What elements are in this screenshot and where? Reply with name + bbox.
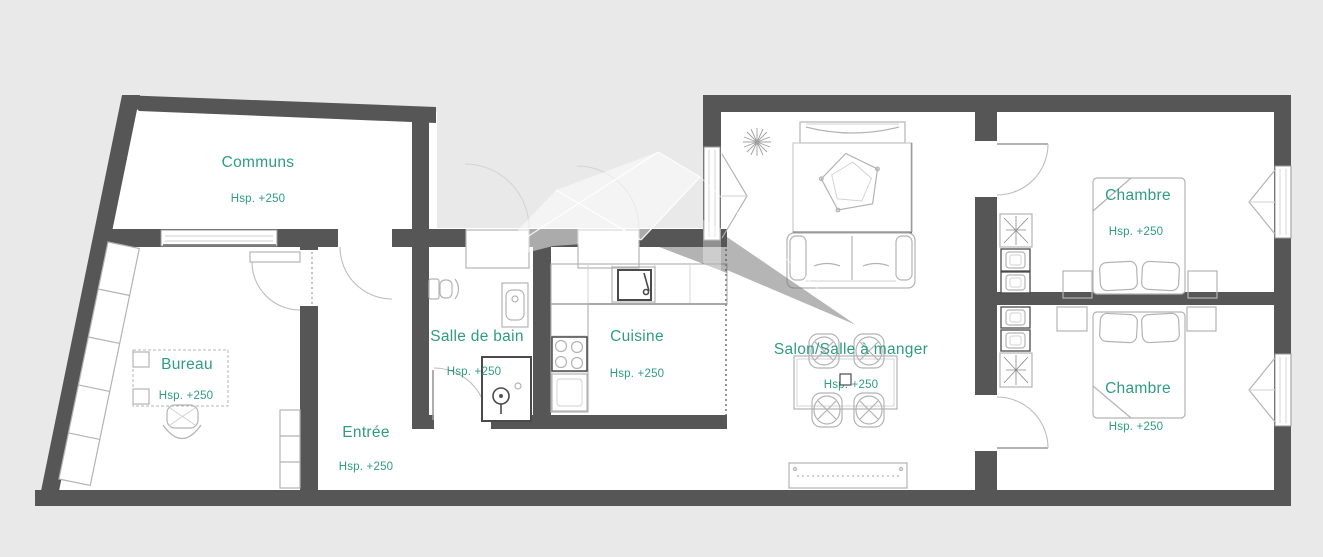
chambre2-door-gap: [975, 395, 997, 451]
radiator: [280, 410, 300, 488]
room-height-cuisine: Hsp. +250: [610, 368, 665, 380]
room-height-entree: Hsp. +250: [339, 461, 394, 473]
communs-window: [161, 230, 277, 246]
room-label-cuisine: Cuisine: [610, 328, 664, 345]
washer-unit: [1001, 307, 1030, 328]
salon-height-marker: [840, 374, 851, 385]
room-label-bureau: Bureau: [161, 356, 213, 373]
sun-plant-icon: [743, 128, 771, 156]
chambre1-door-gap: [975, 141, 997, 197]
room-label-chambre-1: Chambre: [1105, 187, 1171, 204]
communs-door-gap: [338, 229, 392, 247]
chambre1-window: [1275, 166, 1291, 238]
room-height-salle-de-bain: Hsp. +250: [447, 366, 502, 378]
washer-unit: [1001, 330, 1030, 351]
room-label-salon: Salon/Salle à manger: [774, 341, 928, 358]
floor-plan: Communs Hsp. +250 Bureau Hsp. +250 Entré…: [0, 0, 1323, 557]
bureau-door-leaf: [250, 252, 300, 262]
wall-right: [1274, 95, 1291, 506]
room-label-chambre-2: Chambre: [1105, 380, 1171, 397]
room-height-chambre-1: Hsp. +250: [1109, 226, 1164, 238]
chambre2-window: [1275, 354, 1291, 426]
room-label-communs: Communs: [222, 154, 295, 171]
wall-vertical-mid-left: [412, 107, 429, 429]
kitchen-sink: [612, 267, 655, 302]
wall-bottom: [35, 490, 1291, 506]
room-height-chambre-2: Hsp. +250: [1109, 421, 1164, 433]
room-label-entree: Entrée: [342, 424, 389, 441]
room-height-bureau: Hsp. +250: [159, 390, 214, 402]
washer-unit: [1001, 249, 1030, 271]
washer-unit: [1001, 272, 1030, 293]
room-height-communs: Hsp. +250: [231, 193, 286, 205]
stove: [552, 337, 587, 371]
bureau-door-gap: [300, 250, 318, 306]
french-door-arc: [465, 164, 529, 228]
wall-bath-kitchen-divider: [533, 247, 551, 417]
room-label-salle-de-bain: Salle de bain: [430, 328, 524, 345]
bed: [1093, 312, 1185, 418]
